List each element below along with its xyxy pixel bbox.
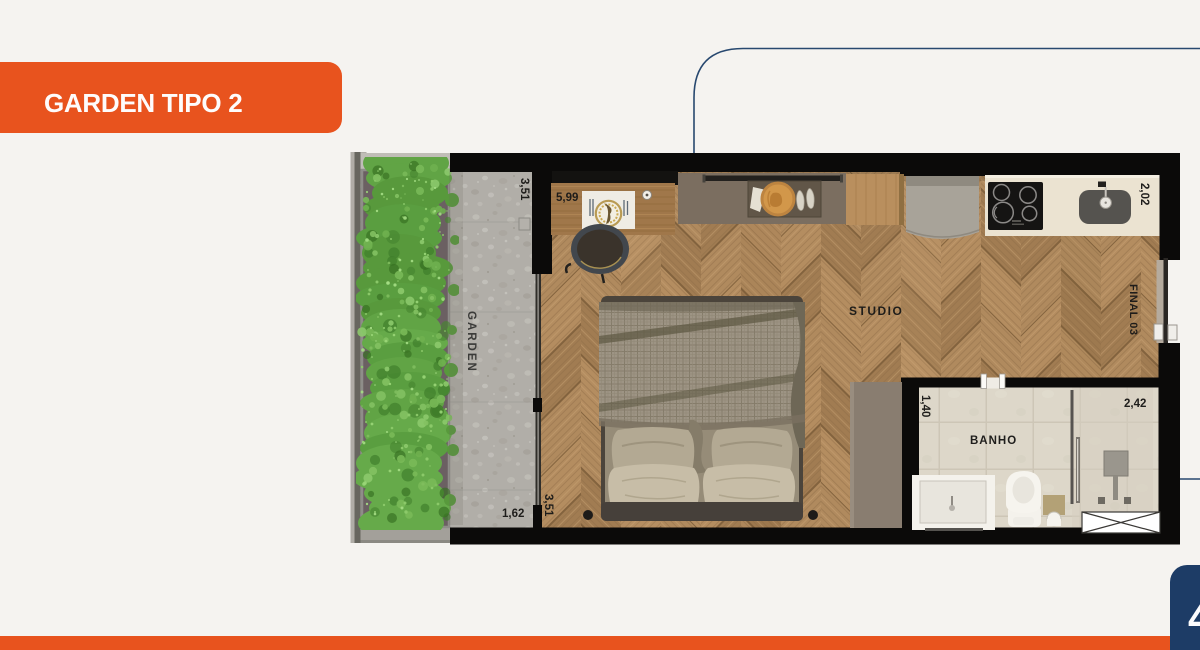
svg-text:5,99: 5,99 [556,192,578,204]
svg-text:2,42: 2,42 [1124,398,1146,410]
svg-text:1,40: 1,40 [919,395,931,417]
svg-text:STUDIO: STUDIO [849,304,903,318]
svg-text:3,51: 3,51 [542,494,554,517]
svg-text:3,51: 3,51 [518,178,530,201]
svg-text:GARDEN: GARDEN [465,311,477,373]
svg-text:2,02: 2,02 [1138,183,1150,205]
svg-text:1,62: 1,62 [502,508,524,520]
svg-text:BANHO: BANHO [970,435,1017,447]
svg-text:FINAL 03: FINAL 03 [1127,284,1139,335]
